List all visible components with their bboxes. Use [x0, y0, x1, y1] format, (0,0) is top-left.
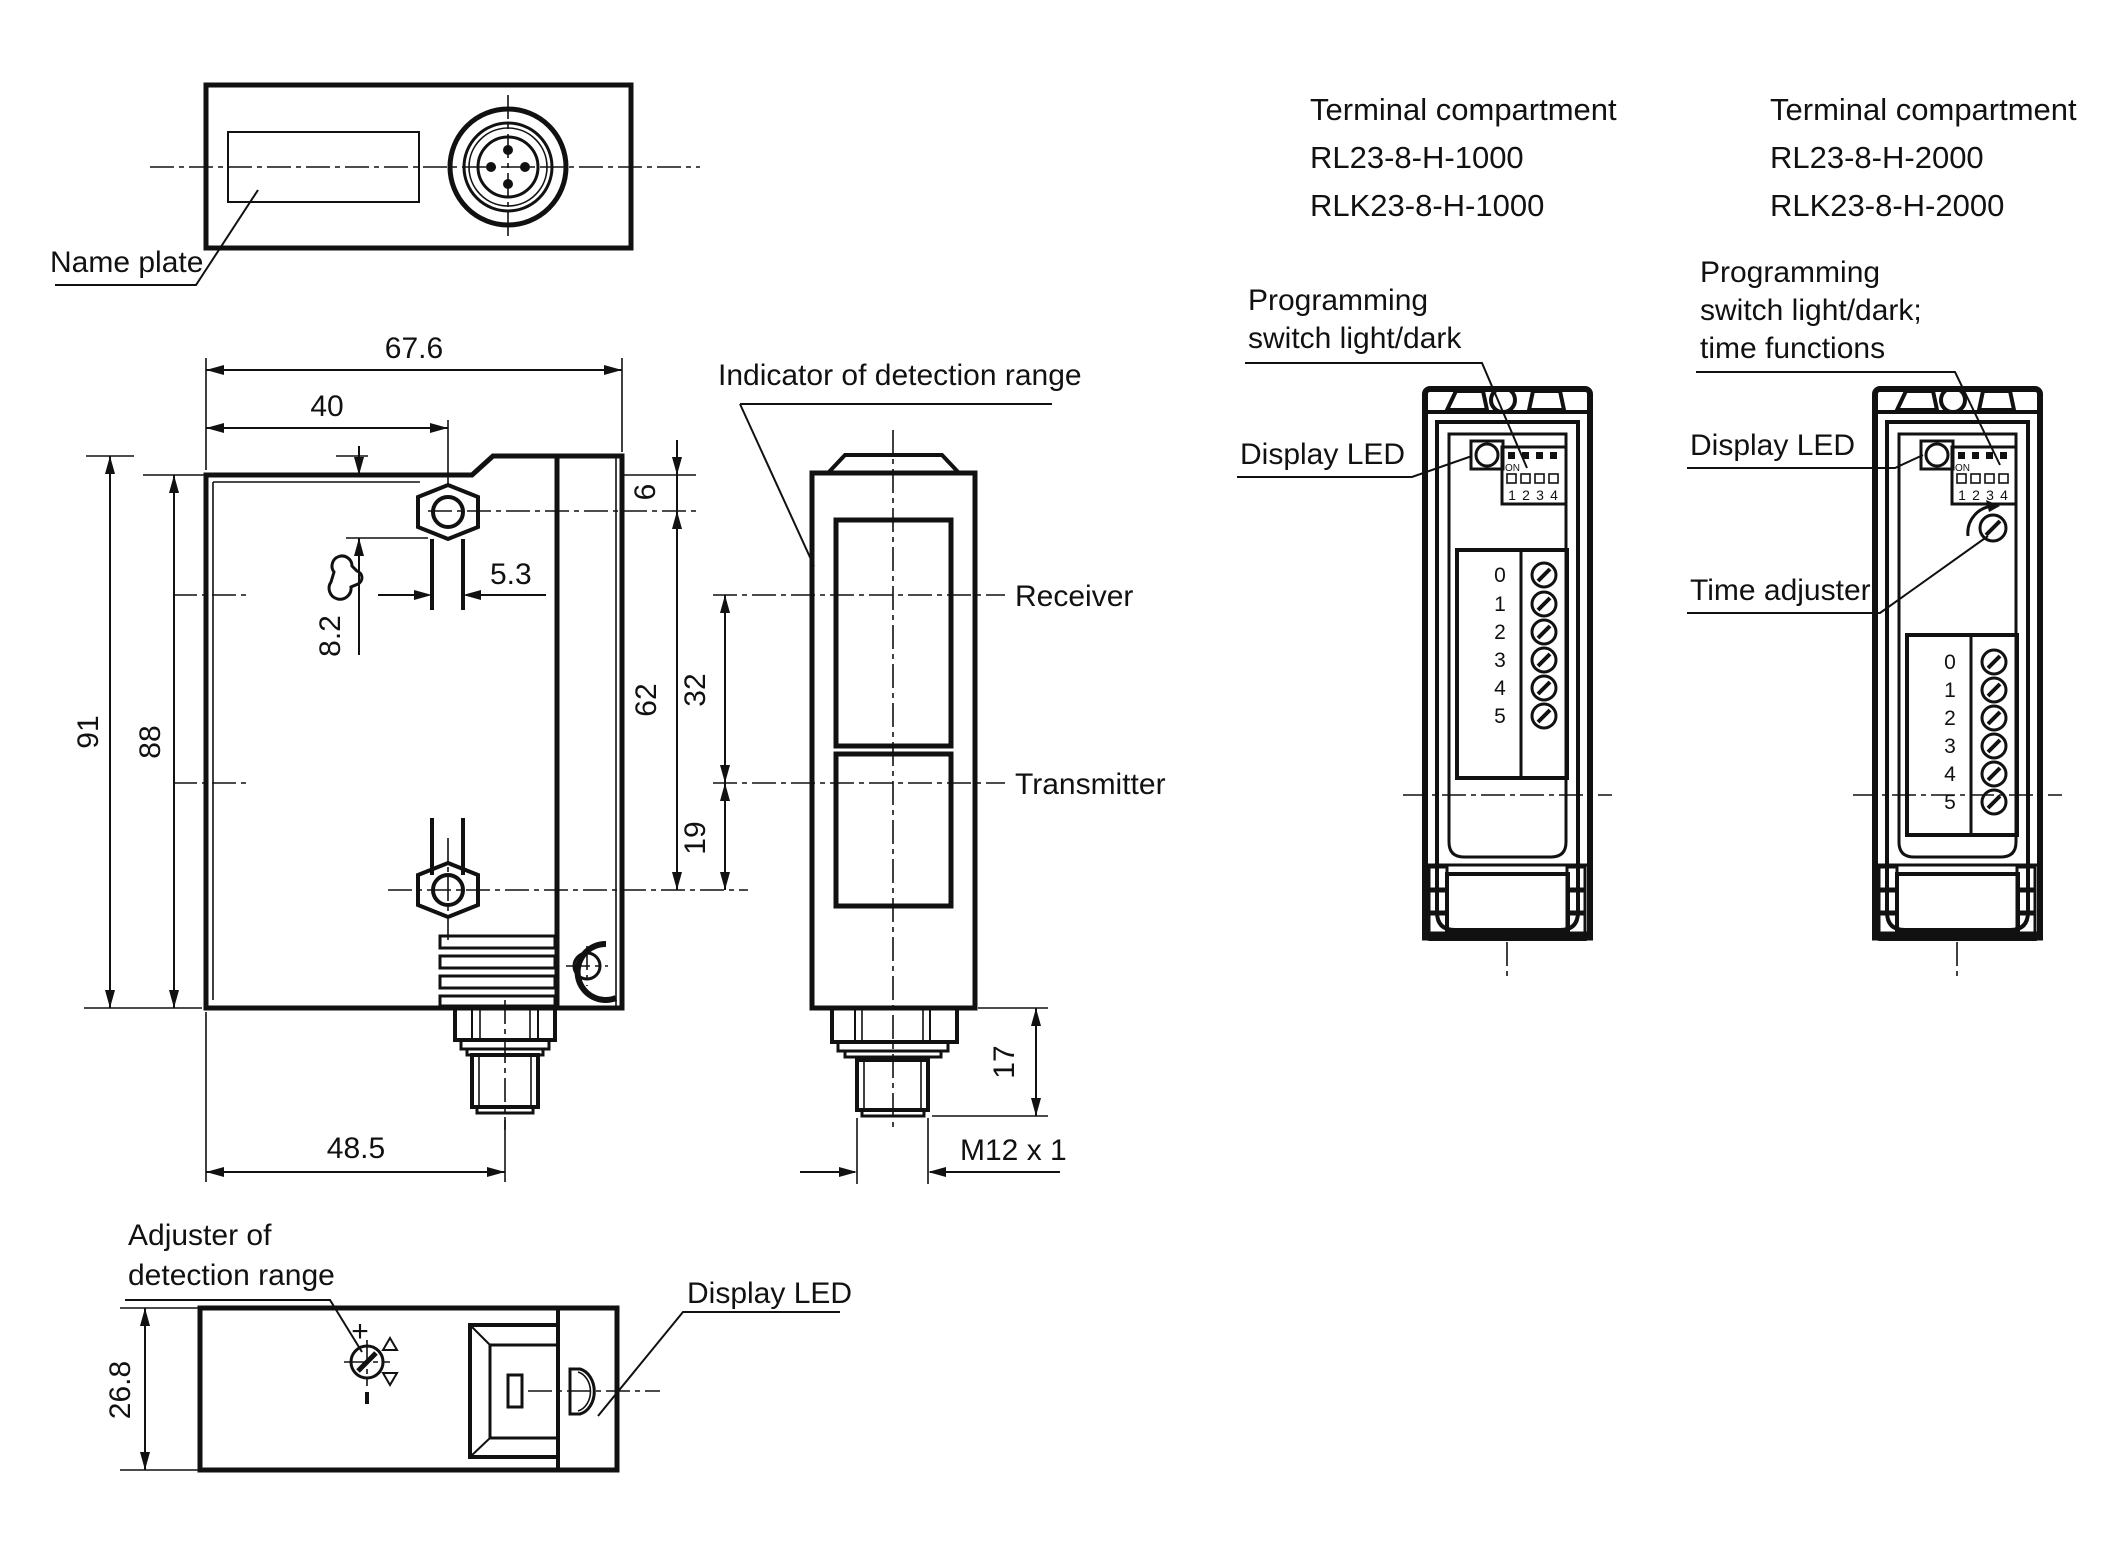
tc1-dip-1: 1 — [1508, 487, 1516, 503]
compartment2-title: Terminal compartment — [1770, 92, 2077, 127]
transmitter-label: Transmitter — [1015, 768, 1166, 801]
tc1-dip-4: 4 — [1550, 487, 1558, 503]
dim-40: 40 — [310, 390, 343, 423]
time-adjuster-screw — [1968, 500, 2006, 541]
dim-5-3: 5.3 — [490, 558, 532, 591]
front-view — [173, 456, 622, 1130]
tc2-terminal-screws — [1982, 650, 2006, 814]
tc2-programming-label-3: time functions — [1700, 332, 1885, 365]
compartment2-model1: RL23-8-H-2000 — [1770, 140, 1984, 175]
tc1-dip-on: ON — [1505, 463, 1520, 474]
tc1-terminal-4: 4 — [1494, 677, 1506, 700]
name-plate-label: Name plate — [50, 246, 203, 279]
tc1-terminal-1: 1 — [1494, 593, 1506, 616]
indicator-label: Indicator of detection range — [718, 359, 1082, 392]
tc1-dip-3: 3 — [1536, 487, 1544, 503]
sensor-dimension-drawing: Name plate — [0, 0, 2126, 1559]
tc2-dip-2: 2 — [1972, 487, 1980, 503]
tc2-cap-notch-right — [1979, 391, 2014, 410]
tc1-programming-label-2: switch light/dark — [1248, 322, 1462, 355]
tc2-programming-label-2: switch light/dark; — [1700, 294, 1922, 327]
lower-mounting-nut — [418, 818, 478, 942]
tc2-dip-switch: ON 1 2 3 4 — [1952, 447, 2016, 504]
compartment2-model2: RLK23-8-H-2000 — [1770, 188, 2004, 223]
tc2-terminal-block: 0 1 2 3 4 5 — [1907, 635, 2017, 835]
tc2-cap-notch-left — [1897, 391, 1937, 410]
tc2-programming-label-1: Programming — [1700, 256, 1880, 289]
compartment1-model1: RL23-8-H-1000 — [1310, 140, 1524, 175]
tc1-dip-2: 2 — [1522, 487, 1530, 503]
receiver-label: Receiver — [1015, 580, 1133, 613]
plus-mark: + — [351, 1315, 369, 1348]
side-view: 17 M12 x 1 Indicator of detection range … — [713, 359, 1166, 1184]
bottom-view: + 26.8 Adjuster of detection range Displ… — [104, 1219, 852, 1470]
terminal-compartment-2: ON 1 2 3 4 0 1 2 3 4 5 — [1687, 256, 2062, 980]
tc1-cable-clamp — [1422, 865, 1593, 980]
top-view: Name plate — [50, 85, 700, 285]
technical-drawing-page: Name plate — [0, 0, 2126, 1559]
dim-32: 32 — [679, 673, 712, 706]
adjuster-label-2: detection range — [128, 1259, 335, 1292]
tc2-terminal-4: 4 — [1944, 763, 1956, 786]
dim-26-8: 26.8 — [104, 1361, 137, 1419]
vent-slots — [440, 936, 555, 1006]
dim-6: 6 — [629, 484, 662, 501]
tc1-terminal-5: 5 — [1494, 705, 1506, 728]
tc1-terminal-3: 3 — [1494, 649, 1506, 672]
dim-8-2: 8.2 — [314, 615, 347, 657]
tc2-display-led-icon — [1926, 444, 1948, 466]
dim-91: 91 — [72, 715, 105, 748]
tc1-cap-notch-right — [1529, 391, 1564, 410]
terminal-compartment-1: ON 1 2 3 4 0 1 2 3 4 5 — [1237, 284, 1612, 980]
bottom-view-outline — [200, 1308, 617, 1470]
tc2-cable-clamp — [1872, 865, 2043, 980]
tc2-terminal-0: 0 — [1944, 651, 1956, 674]
compartment1-title: Terminal compartment — [1310, 92, 1617, 127]
tc2-dip-on: ON — [1955, 463, 1970, 474]
front-inner-line — [213, 482, 420, 1000]
indicator-leader — [740, 404, 1052, 566]
tc2-terminal-3: 3 — [1944, 735, 1956, 758]
led-slot — [508, 1375, 522, 1407]
tc2-dip-4: 4 — [2000, 487, 2008, 503]
time-adjuster-label: Time adjuster — [1690, 574, 1871, 607]
tc1-display-led-label: Display LED — [1240, 438, 1405, 471]
triangle-down-icon — [383, 1373, 397, 1385]
tc1-programming-label-1: Programming — [1248, 284, 1428, 317]
tc1-cap-notch-left — [1447, 391, 1487, 410]
tc1-terminal-0: 0 — [1494, 564, 1506, 587]
tc2-terminal-1: 1 — [1944, 679, 1956, 702]
adjuster-label-1: Adjuster of — [128, 1219, 272, 1252]
dim-88: 88 — [134, 725, 167, 758]
front-connector — [455, 1000, 555, 1130]
dim-48-5: 48.5 — [327, 1132, 385, 1165]
tc1-terminal-2: 2 — [1494, 621, 1506, 644]
dim-62: 62 — [630, 683, 663, 716]
triangle-up-icon — [383, 1338, 397, 1350]
dim-19: 19 — [679, 821, 712, 854]
tc1-dip-switch: ON 1 2 3 4 — [1502, 447, 1566, 504]
front-dimensions: 67.6 40 91 88 6 62 32 19 — [72, 332, 748, 1182]
tc2-display-led-label: Display LED — [1690, 429, 1855, 462]
dim-67-6: 67.6 — [385, 332, 443, 365]
tc1-terminal-block: 0 1 2 3 4 5 — [1457, 550, 1567, 778]
thread-label: M12 x 1 — [960, 1134, 1067, 1167]
bottom-led-leader — [598, 1312, 840, 1416]
headers: Terminal compartment RL23-8-H-1000 RLK23… — [1310, 92, 2077, 223]
upper-mounting-nut — [418, 485, 478, 610]
tc2-dip-1: 1 — [1958, 487, 1966, 503]
bottom-display-led-label: Display LED — [687, 1277, 852, 1310]
side-connector — [832, 1008, 957, 1116]
compartment1-model2: RLK23-8-H-1000 — [1310, 188, 1544, 223]
wrench-icon — [329, 556, 362, 599]
tc2-terminal-2: 2 — [1944, 707, 1956, 730]
range-adjuster-screw: + — [344, 1315, 397, 1404]
mounting-hook-icon — [566, 944, 616, 1000]
dim-17: 17 — [988, 1045, 1021, 1078]
tc1-terminal-screws — [1532, 563, 1556, 728]
tc1-display-led-icon — [1476, 444, 1498, 466]
